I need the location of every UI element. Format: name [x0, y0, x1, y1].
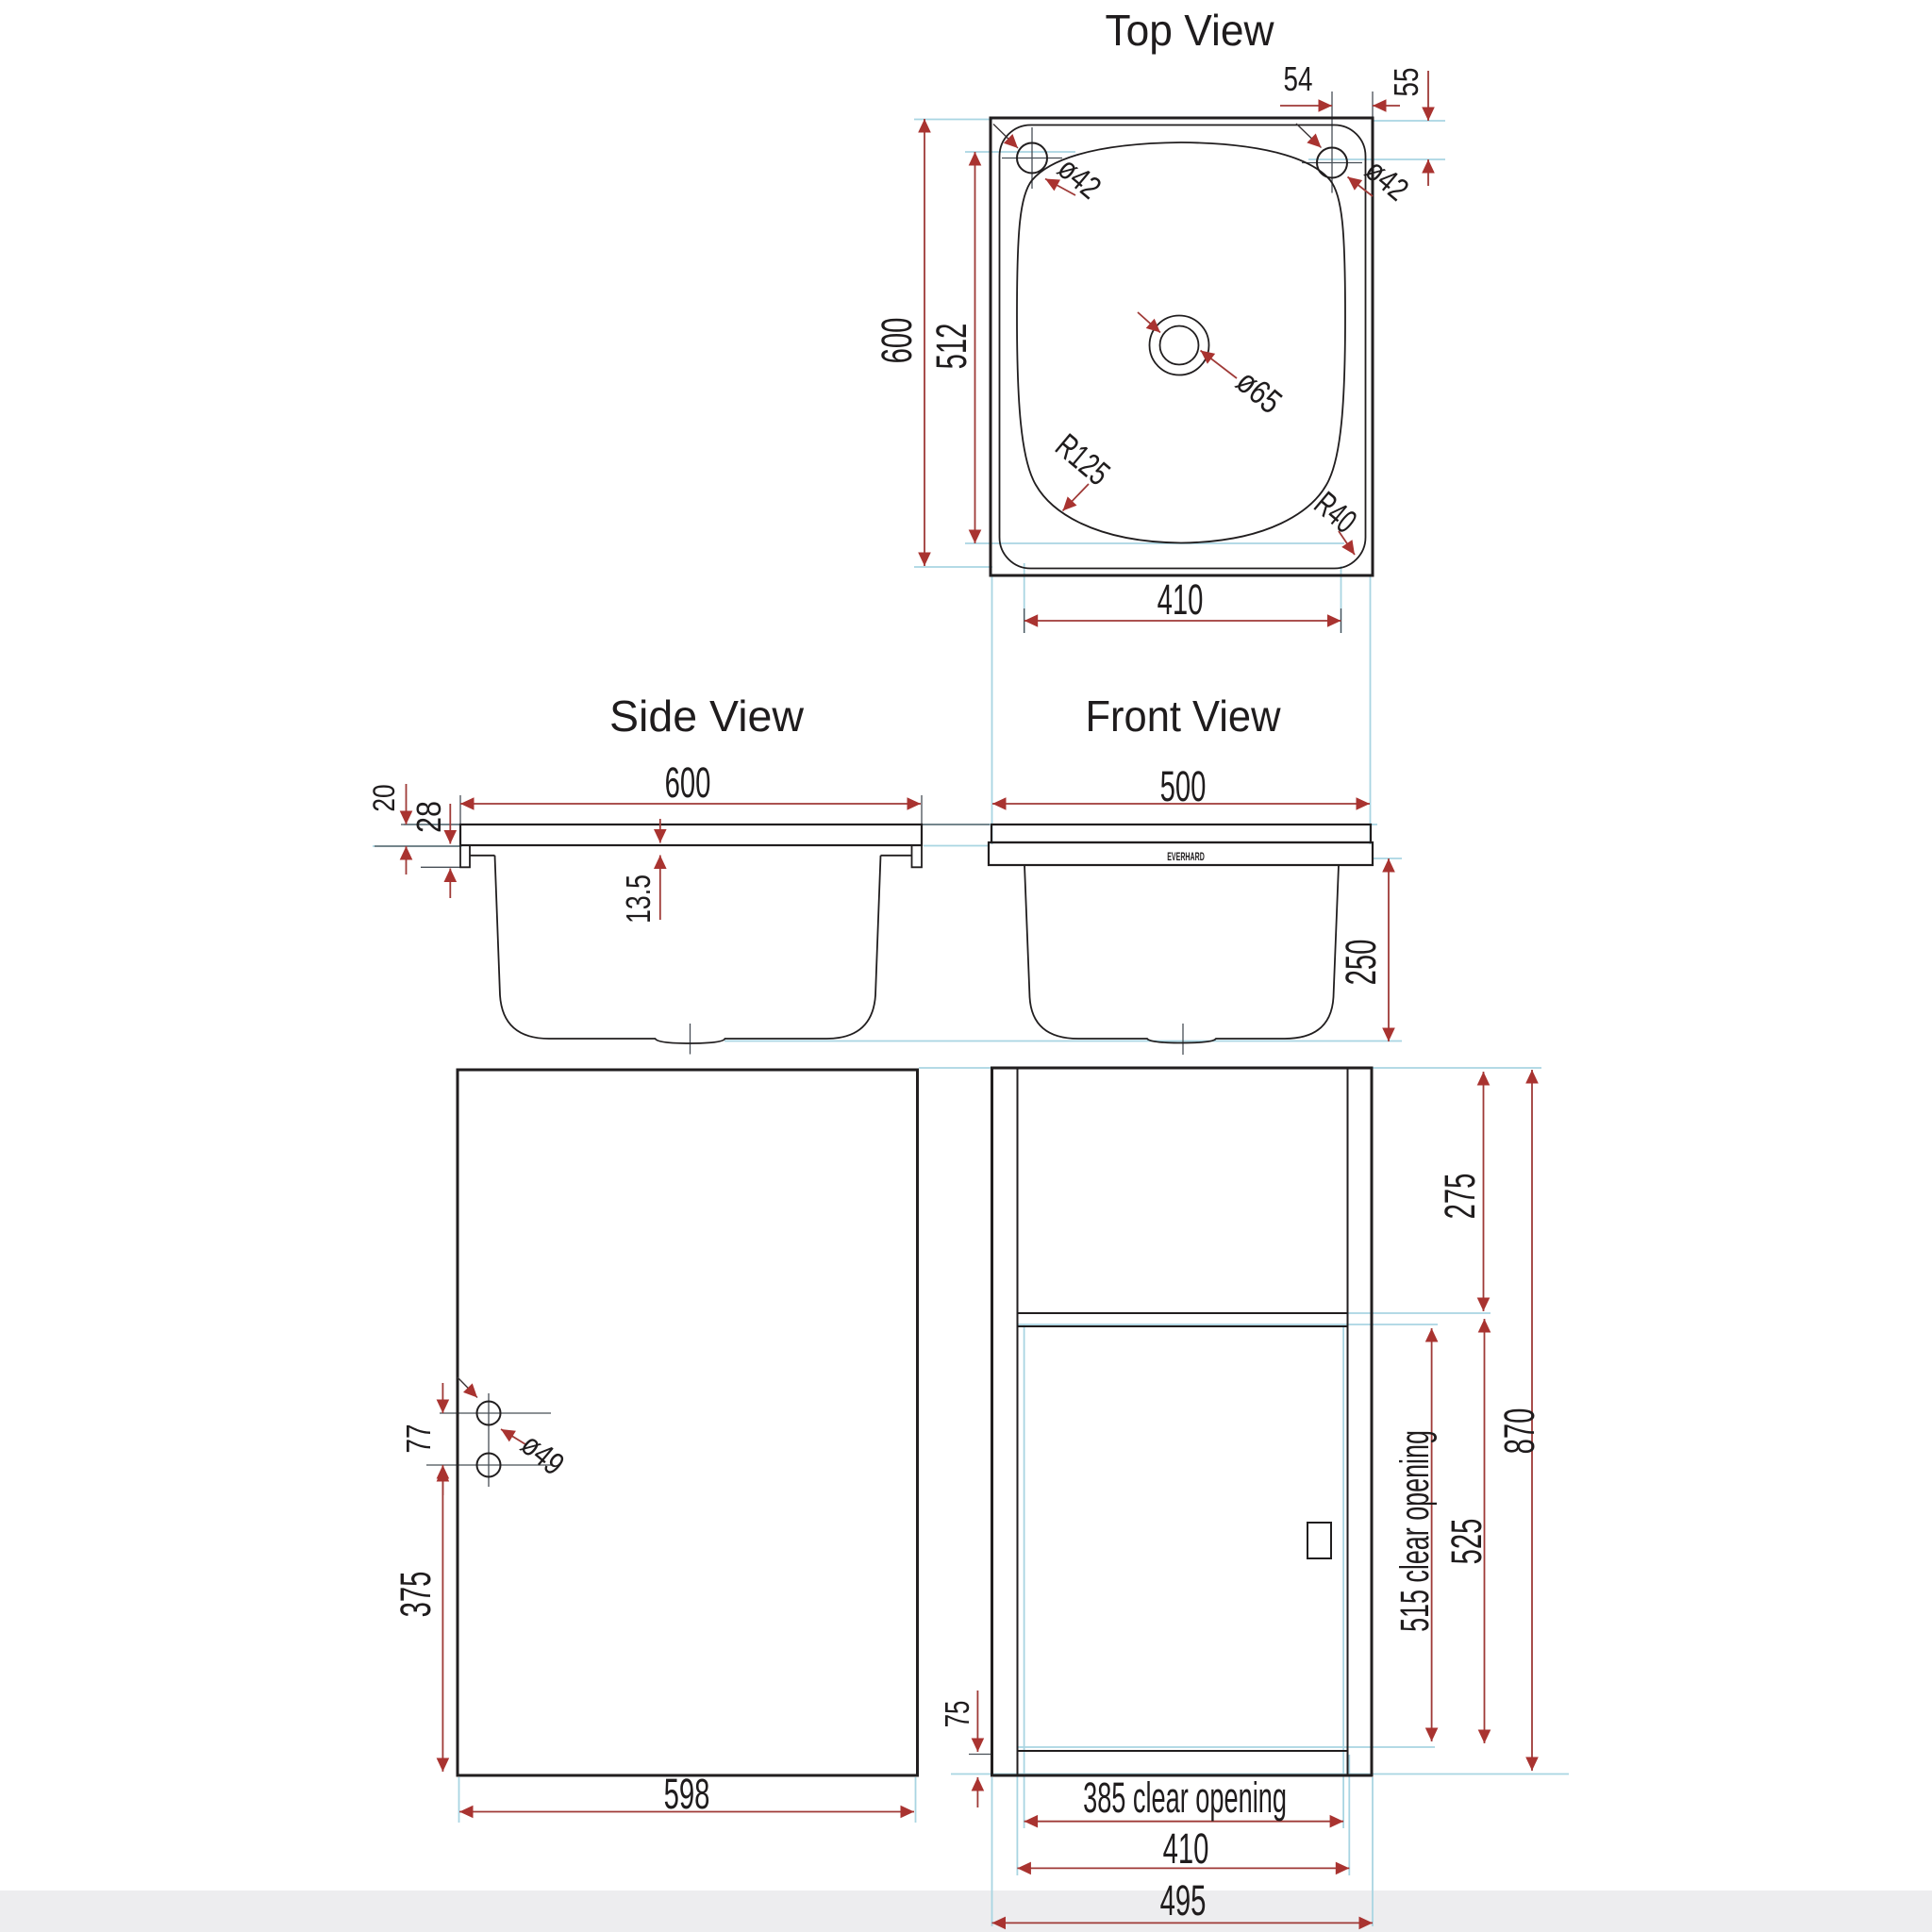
- svg-text:410: 410: [1163, 1825, 1209, 1874]
- svg-text:500: 500: [1160, 763, 1207, 811]
- svg-text:250: 250: [1338, 940, 1386, 986]
- svg-text:20: 20: [367, 784, 401, 811]
- svg-text:75: 75: [939, 1701, 976, 1728]
- svg-text:Front View: Front View: [1086, 691, 1282, 741]
- svg-text:275: 275: [1437, 1174, 1485, 1220]
- svg-text:598: 598: [664, 1771, 710, 1819]
- svg-text:600: 600: [874, 318, 922, 364]
- svg-text:512: 512: [928, 324, 976, 370]
- svg-text:Side View: Side View: [609, 691, 805, 741]
- svg-text:375: 375: [392, 1572, 441, 1618]
- svg-text:870: 870: [1496, 1408, 1544, 1455]
- svg-text:385 clear opening: 385 clear opening: [1083, 1774, 1287, 1823]
- svg-text:525: 525: [1443, 1519, 1491, 1565]
- svg-text:Top View: Top View: [1106, 6, 1275, 55]
- svg-text:55: 55: [1388, 68, 1425, 97]
- svg-text:54: 54: [1284, 60, 1313, 98]
- svg-text:600: 600: [665, 759, 711, 808]
- svg-text:77: 77: [400, 1424, 438, 1454]
- svg-text:495: 495: [1160, 1877, 1207, 1925]
- svg-text:EVERHARD: EVERHARD: [1167, 852, 1205, 864]
- svg-text:515 clear opening: 515 clear opening: [1391, 1430, 1437, 1632]
- svg-text:13.5: 13.5: [620, 874, 658, 924]
- svg-text:410: 410: [1158, 576, 1204, 625]
- svg-text:28: 28: [410, 801, 448, 833]
